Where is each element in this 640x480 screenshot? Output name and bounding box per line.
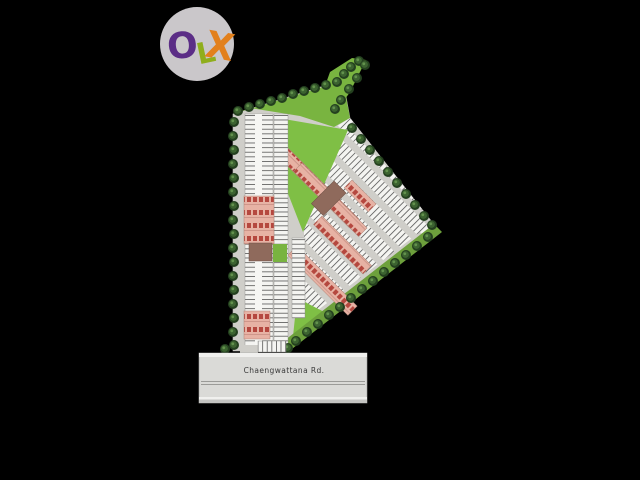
brown-building-left xyxy=(249,243,272,261)
road-divider-line xyxy=(201,384,365,385)
kerbside-parking xyxy=(258,341,286,352)
road-edge-line-top xyxy=(199,353,367,357)
road-divider-line xyxy=(201,381,365,382)
pocket-garden xyxy=(273,244,287,262)
main-road: Chaengwattana Rd. xyxy=(199,353,367,403)
road-shoulder xyxy=(199,400,367,404)
road-surface xyxy=(199,353,367,403)
entrance-driveway xyxy=(240,345,258,354)
listing-photo: Chaengwattana Rd. O L X xyxy=(0,0,640,480)
site-plan-image: Chaengwattana Rd. O L X xyxy=(0,0,640,480)
road-name-label: Chaengwattana Rd. xyxy=(244,366,325,375)
road-edge-line-bottom xyxy=(199,397,367,400)
